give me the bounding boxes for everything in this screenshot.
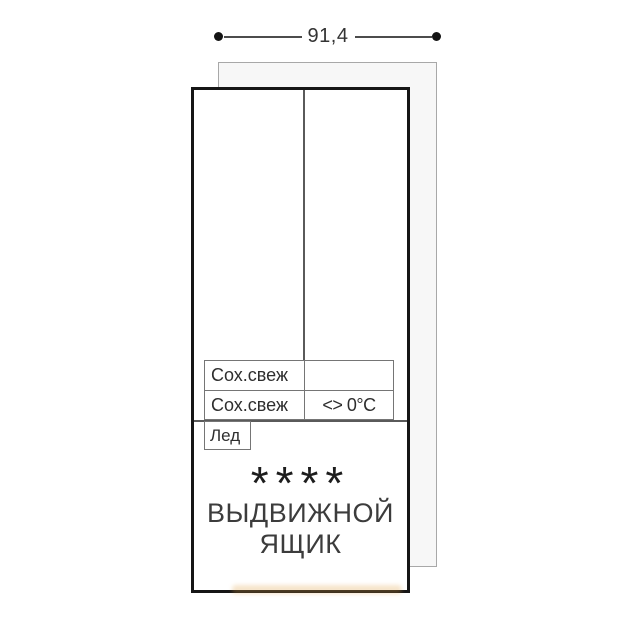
dimension-endpoint-dot-right (432, 32, 441, 41)
zone-cell-temperature: <> 0°C (305, 391, 393, 419)
zone-row-fresh-2: Сох.свеж <> 0°C (204, 391, 394, 420)
dimension-line-left-segment (224, 36, 302, 38)
freezer-star-rating: **** (194, 460, 407, 496)
ice-compartment-label: Лед (210, 426, 240, 446)
dimension-line-right-segment (355, 36, 432, 38)
dimension-label: 91,4 (297, 25, 359, 48)
drawer-title-line1: ВЫДВИЖНОЙ (194, 498, 407, 529)
diagram-canvas: 91,4 Сох.свеж Сох.свеж <> 0°C Лед **** В… (0, 0, 625, 625)
zone-table: Сох.свеж Сох.свеж <> 0°C (204, 360, 394, 420)
drawer-title-line2: ЯЩИК (194, 529, 407, 560)
zone-cell-fresh-1-label: Сох.свеж (205, 361, 305, 390)
zone-cell-fresh-1-value (305, 361, 393, 390)
zone-row-fresh-1: Сох.свеж (204, 360, 394, 391)
drawer-title: ВЫДВИЖНОЙ ЯЩИК (194, 498, 407, 560)
watermark (232, 585, 402, 594)
zone-cell-fresh-2-label: Сох.свеж (205, 391, 305, 419)
ice-compartment-box: Лед (204, 421, 251, 450)
dimension-endpoint-dot-left (214, 32, 223, 41)
